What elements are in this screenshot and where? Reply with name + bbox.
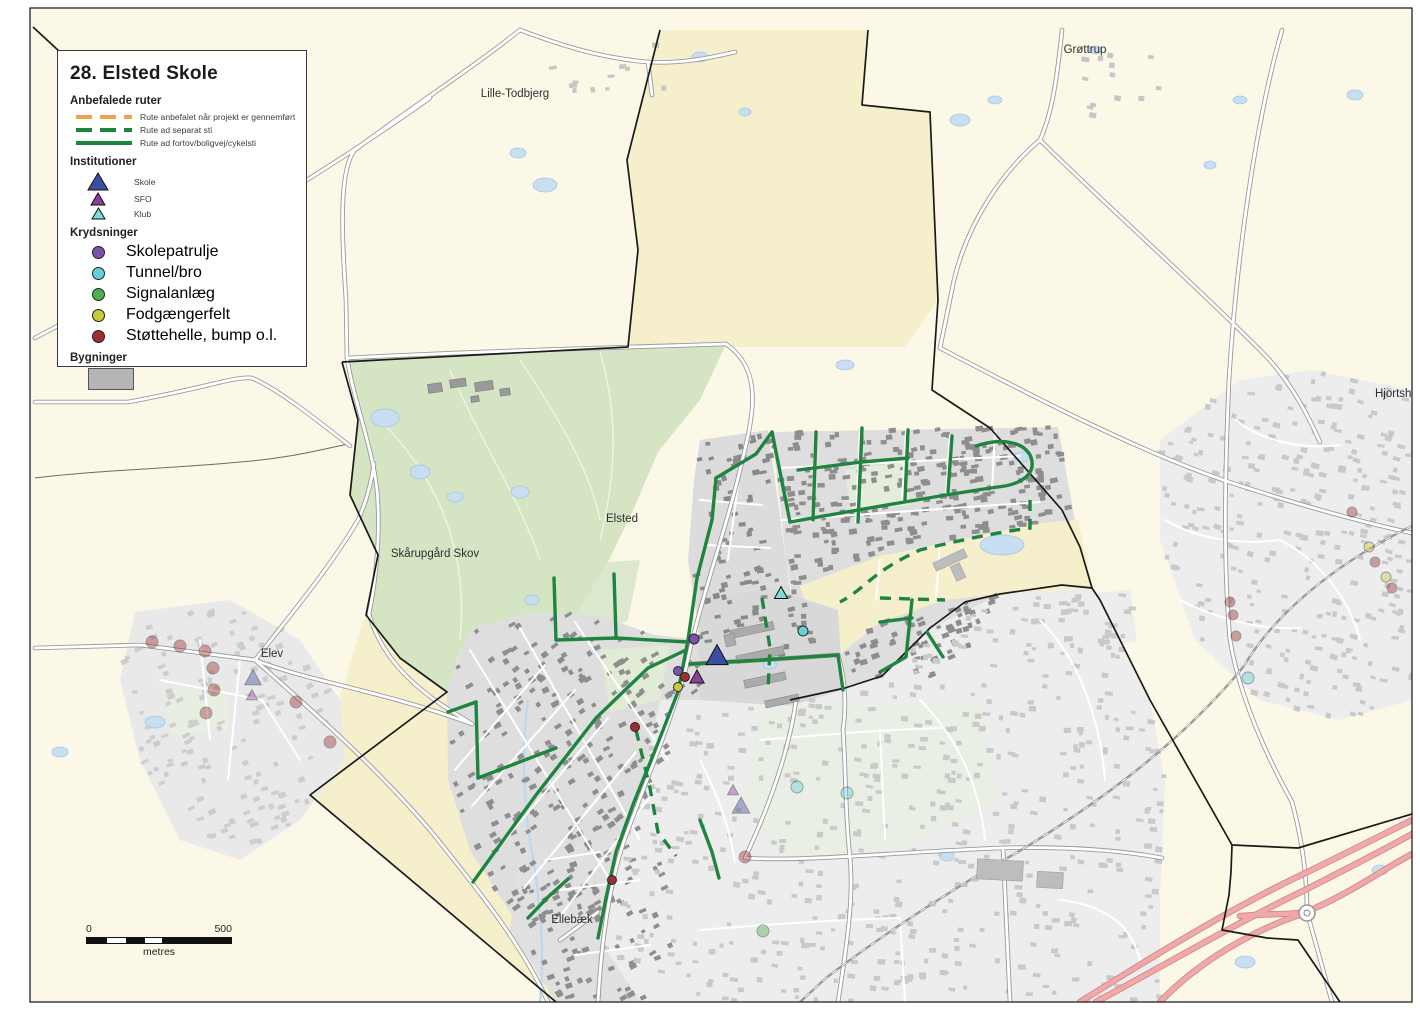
place-label: Grøttrup [1064,44,1107,56]
crossing-marker-stottehelle[interactable] [290,696,302,708]
crossing-marker-stottehelle[interactable] [1225,597,1235,607]
legend-institution-item: Skole [70,172,296,191]
crossing-marker-stottehelle[interactable] [1370,557,1380,567]
crossing-marker-stottehelle[interactable] [208,684,220,696]
building-swatch-icon [88,368,134,390]
crossing-marker-stottehelle[interactable] [739,851,751,863]
legend-institutions-header: Institutioner [70,156,296,168]
sfo-triangle-icon [70,192,126,206]
crossing-marker-stottehelle[interactable] [1387,583,1397,593]
legend-routes-header: Anbefalede ruter [70,95,296,107]
legend-institution-item: SFO [70,192,296,206]
fodgaengerfelt-dot-icon [92,309,105,322]
map-document: Lille-TodbjergGrøttrupHjortshøjElstedSkå… [0,0,1420,1011]
legend-route-item: Rute ad fortov/boligvej/cykelsti [70,137,296,149]
crossing-marker-tunnelbro[interactable] [798,626,808,636]
legend-crossing-item: Skolepatrulje [70,243,296,261]
crossing-marker-stottehelle[interactable] [199,645,211,657]
legend-route-item: Rute anbefalet når projekt er gennemført [70,111,296,123]
place-label: Lille-Todbjerg [481,88,549,100]
route-solid [614,574,616,636]
scale-unit-label: metres [86,946,232,958]
crossing-marker-stottehelle[interactable] [207,662,219,674]
crossing-marker-tunnelbro[interactable] [841,787,853,799]
crossing-marker-tunnelbro[interactable] [791,781,803,793]
stottehelle-dot-icon [92,330,105,343]
crossing-marker-stottehelle[interactable] [1228,610,1238,620]
crossing-marker-fodgaengerfelt[interactable] [1364,542,1374,552]
crossing-marker-stottehelle[interactable] [1231,631,1241,641]
scale-end-label: 500 [214,923,232,935]
crossing-marker-stottehelle[interactable] [174,640,186,652]
scale-bar: 0 500 metres [86,923,232,958]
route-solid-green-icon [76,141,132,146]
crossing-marker-signalanlaeg[interactable] [757,925,769,937]
legend-crossing-item: Støttehelle, bump o.l. [70,327,296,345]
crossing-marker-stottehelle[interactable] [1347,507,1357,517]
tunnel-bro-dot-icon [92,267,105,280]
legend-route-item: Rute ad separat sti [70,124,296,136]
route-dashed-green-icon [76,128,132,131]
crossing-marker-stottehelle[interactable] [146,636,158,648]
crossing-marker-tunnelbro[interactable] [1242,672,1254,684]
route-dashed-orange-icon [76,115,132,118]
scale-start-label: 0 [86,923,92,935]
crossing-marker-stottehelle[interactable] [608,876,617,885]
legend-crossings-header: Krydsninger [70,227,296,239]
legend-panel: 28. Elsted Skole Anbefalede ruter Rute a… [57,50,307,367]
crossing-marker-stottehelle[interactable] [631,723,640,732]
legend-title: 28. Elsted Skole [70,63,296,85]
crossing-marker-stottehelle[interactable] [200,707,212,719]
crossing-marker-skolepatrulje[interactable] [689,634,699,644]
legend-crossing-item: Tunnel/bro [70,264,296,282]
crossing-marker-stottehelle[interactable] [681,673,690,682]
place-label: Skårupgård Skov [391,548,479,560]
legend-crossing-item: Fodgængerfelt [70,306,296,324]
place-label: Elev [261,648,284,660]
skole-triangle-icon [70,172,126,191]
scale-bar-graphic [86,937,232,944]
skolepatrulje-dot-icon [92,246,105,259]
place-label: Elsted [606,513,638,525]
legend-institution-item: Klub [70,207,296,220]
crossing-marker-stottehelle[interactable] [324,736,336,748]
crossing-marker-fodgaengerfelt[interactable] [674,683,683,692]
route-solid [554,578,556,640]
place-label: Ellebæk [551,914,593,926]
route-solid [476,702,478,778]
signalanlaeg-dot-icon [92,288,105,301]
legend-buildings-header: Bygninger [70,352,296,364]
legend-crossing-item: Signalanlæg [70,285,296,303]
klub-triangle-icon [70,207,126,220]
crossing-marker-fodgaengerfelt[interactable] [1381,572,1391,582]
